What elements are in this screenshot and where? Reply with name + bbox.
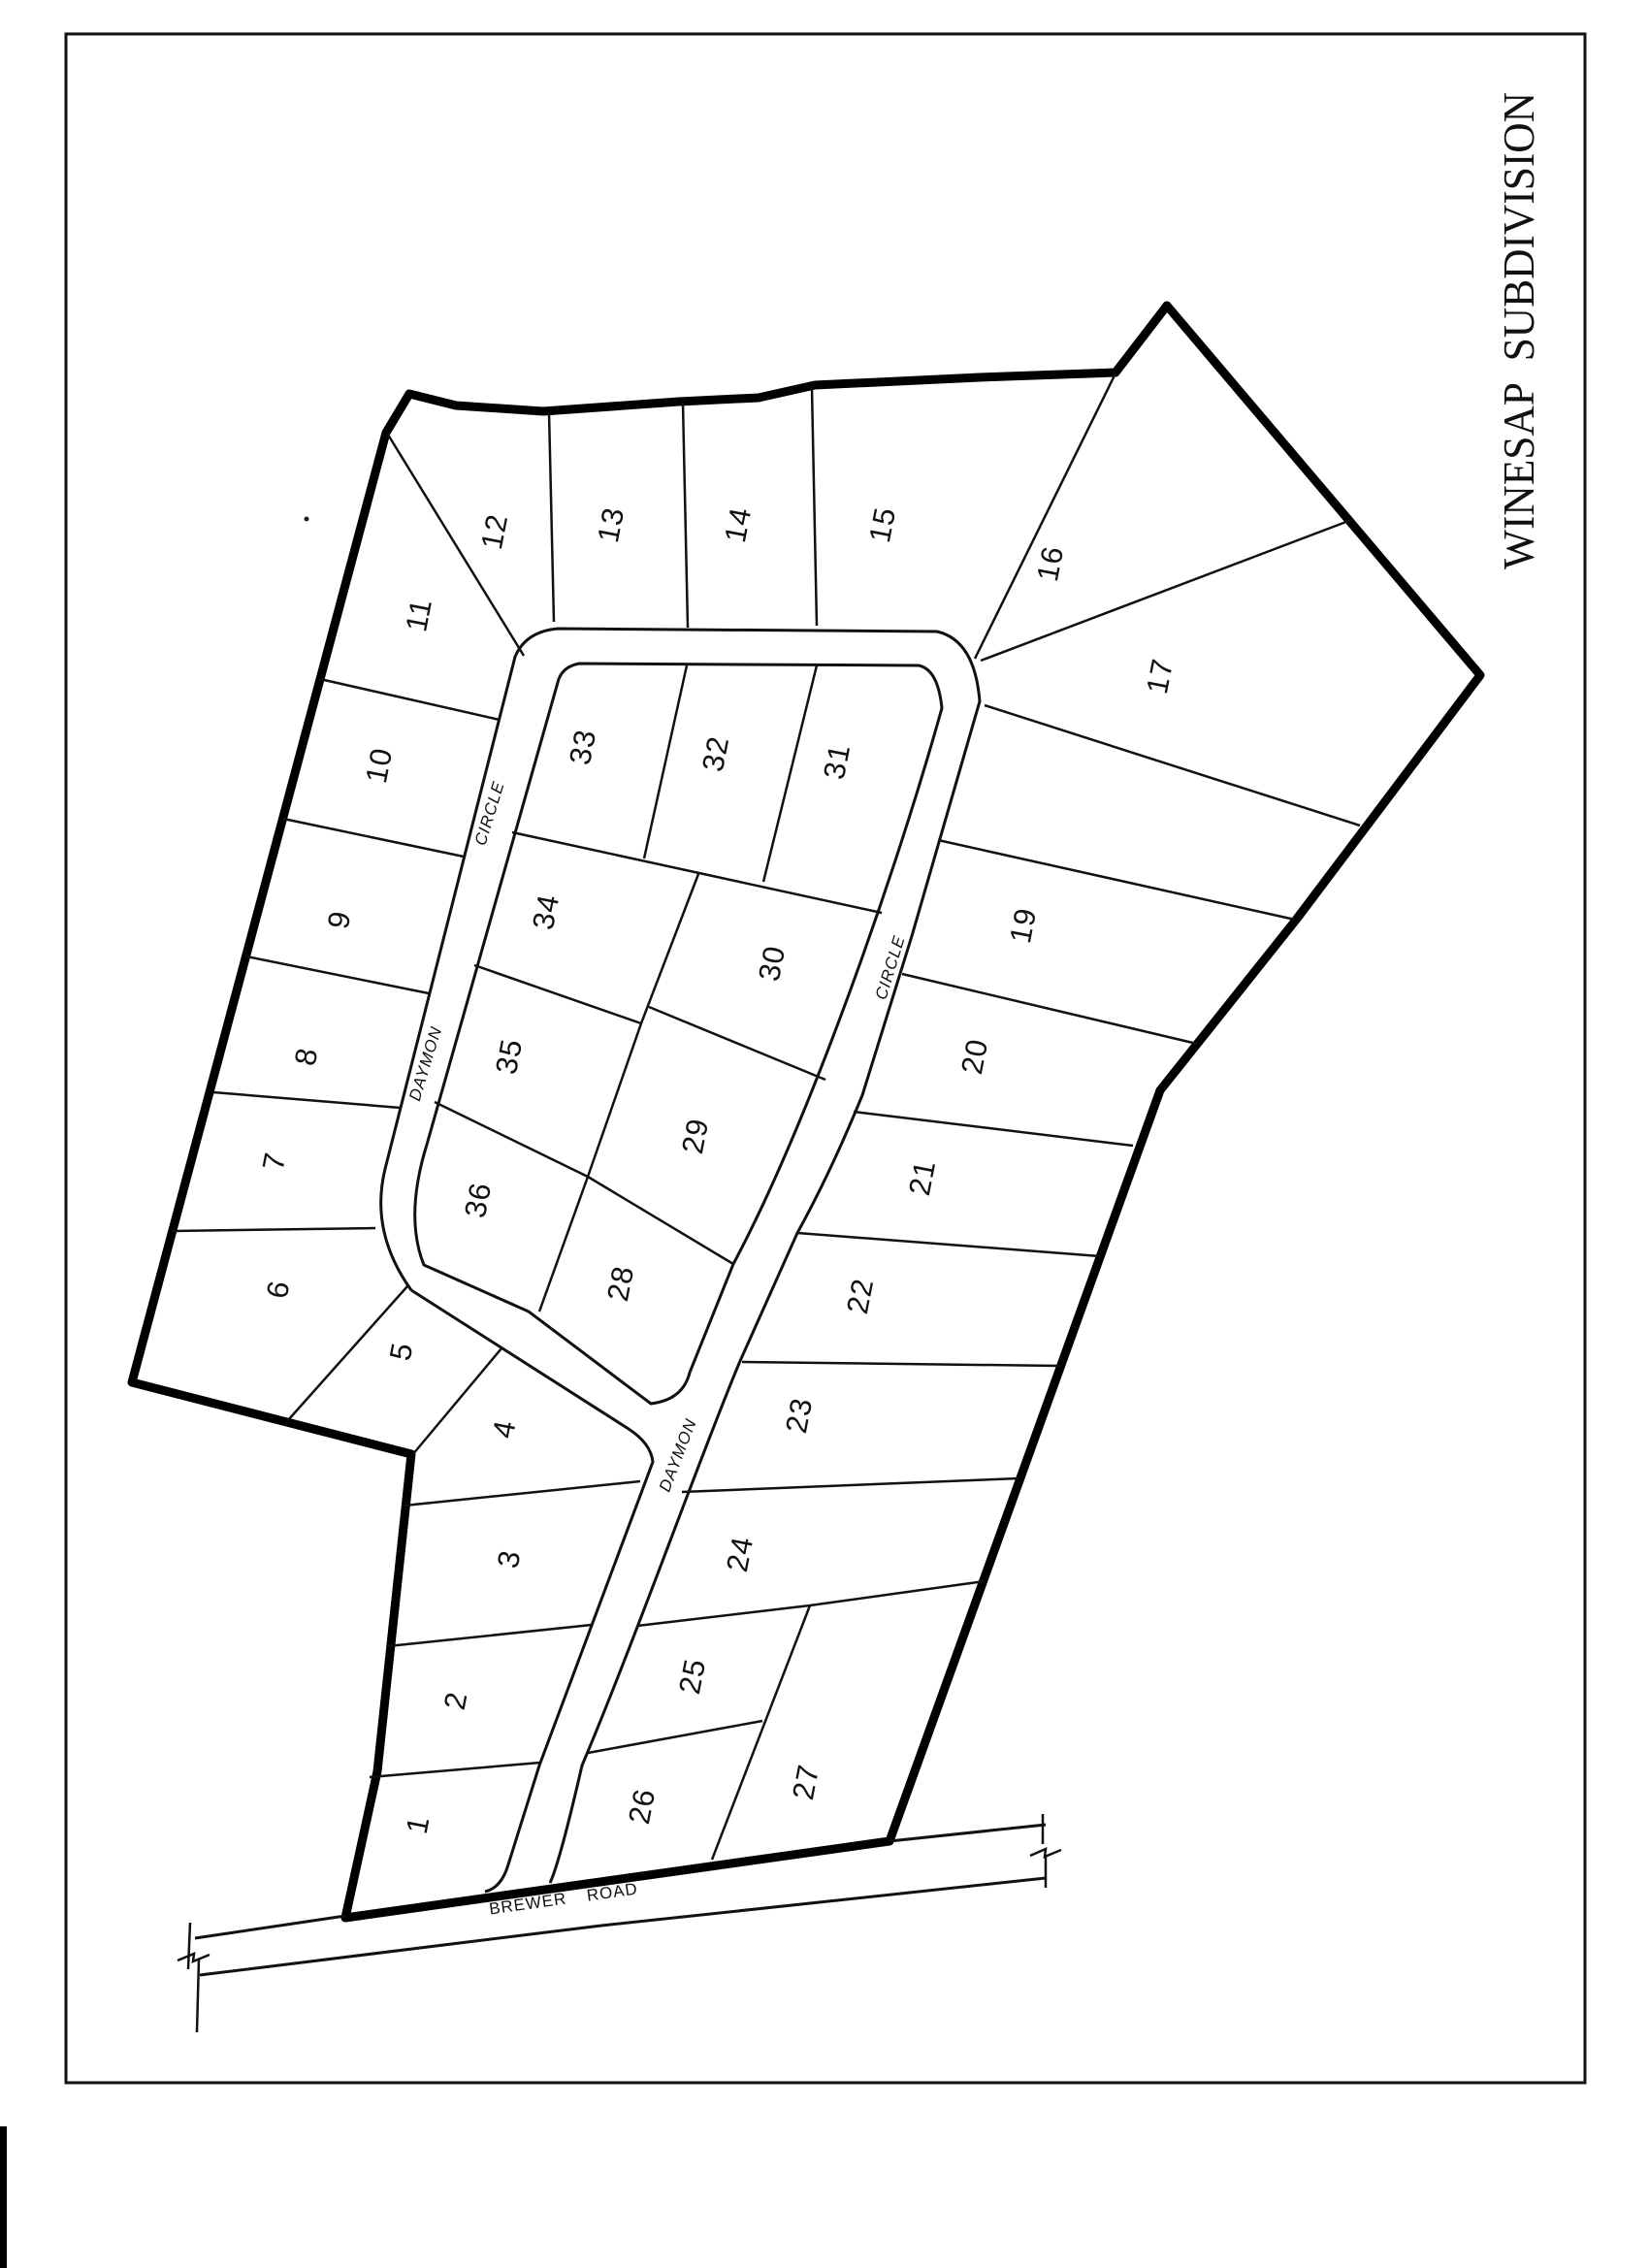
svg-text:20: 20 (954, 1036, 994, 1077)
svg-text:24: 24 (720, 1534, 760, 1574)
svg-text:21: 21 (902, 1157, 942, 1198)
svg-text:16: 16 (1030, 543, 1070, 584)
svg-text:26: 26 (622, 1786, 662, 1827)
svg-text:29: 29 (675, 1116, 715, 1156)
svg-text:33: 33 (563, 727, 602, 767)
svg-text:10: 10 (359, 745, 399, 786)
svg-text:27: 27 (786, 1762, 825, 1802)
svg-text:35: 35 (489, 1036, 529, 1077)
svg-text:34: 34 (526, 891, 566, 932)
svg-text:13: 13 (591, 504, 630, 545)
svg-text:22: 22 (840, 1276, 880, 1316)
svg-text:19: 19 (1003, 905, 1043, 946)
svg-text:36: 36 (458, 1180, 498, 1220)
svg-text:WINESAP SUBDIVISION: WINESAP SUBDIVISION (1494, 92, 1543, 569)
svg-text:12: 12 (474, 511, 514, 552)
svg-text:30: 30 (752, 943, 792, 984)
svg-text:32: 32 (695, 733, 735, 774)
svg-text:17: 17 (1140, 656, 1180, 697)
svg-text:28: 28 (600, 1263, 640, 1304)
svg-text:31: 31 (817, 741, 857, 782)
svg-text:14: 14 (718, 504, 758, 545)
svg-text:15: 15 (862, 504, 902, 545)
svg-text:25: 25 (672, 1656, 712, 1697)
svg-text:23: 23 (779, 1395, 819, 1436)
svg-text:11: 11 (399, 596, 438, 634)
